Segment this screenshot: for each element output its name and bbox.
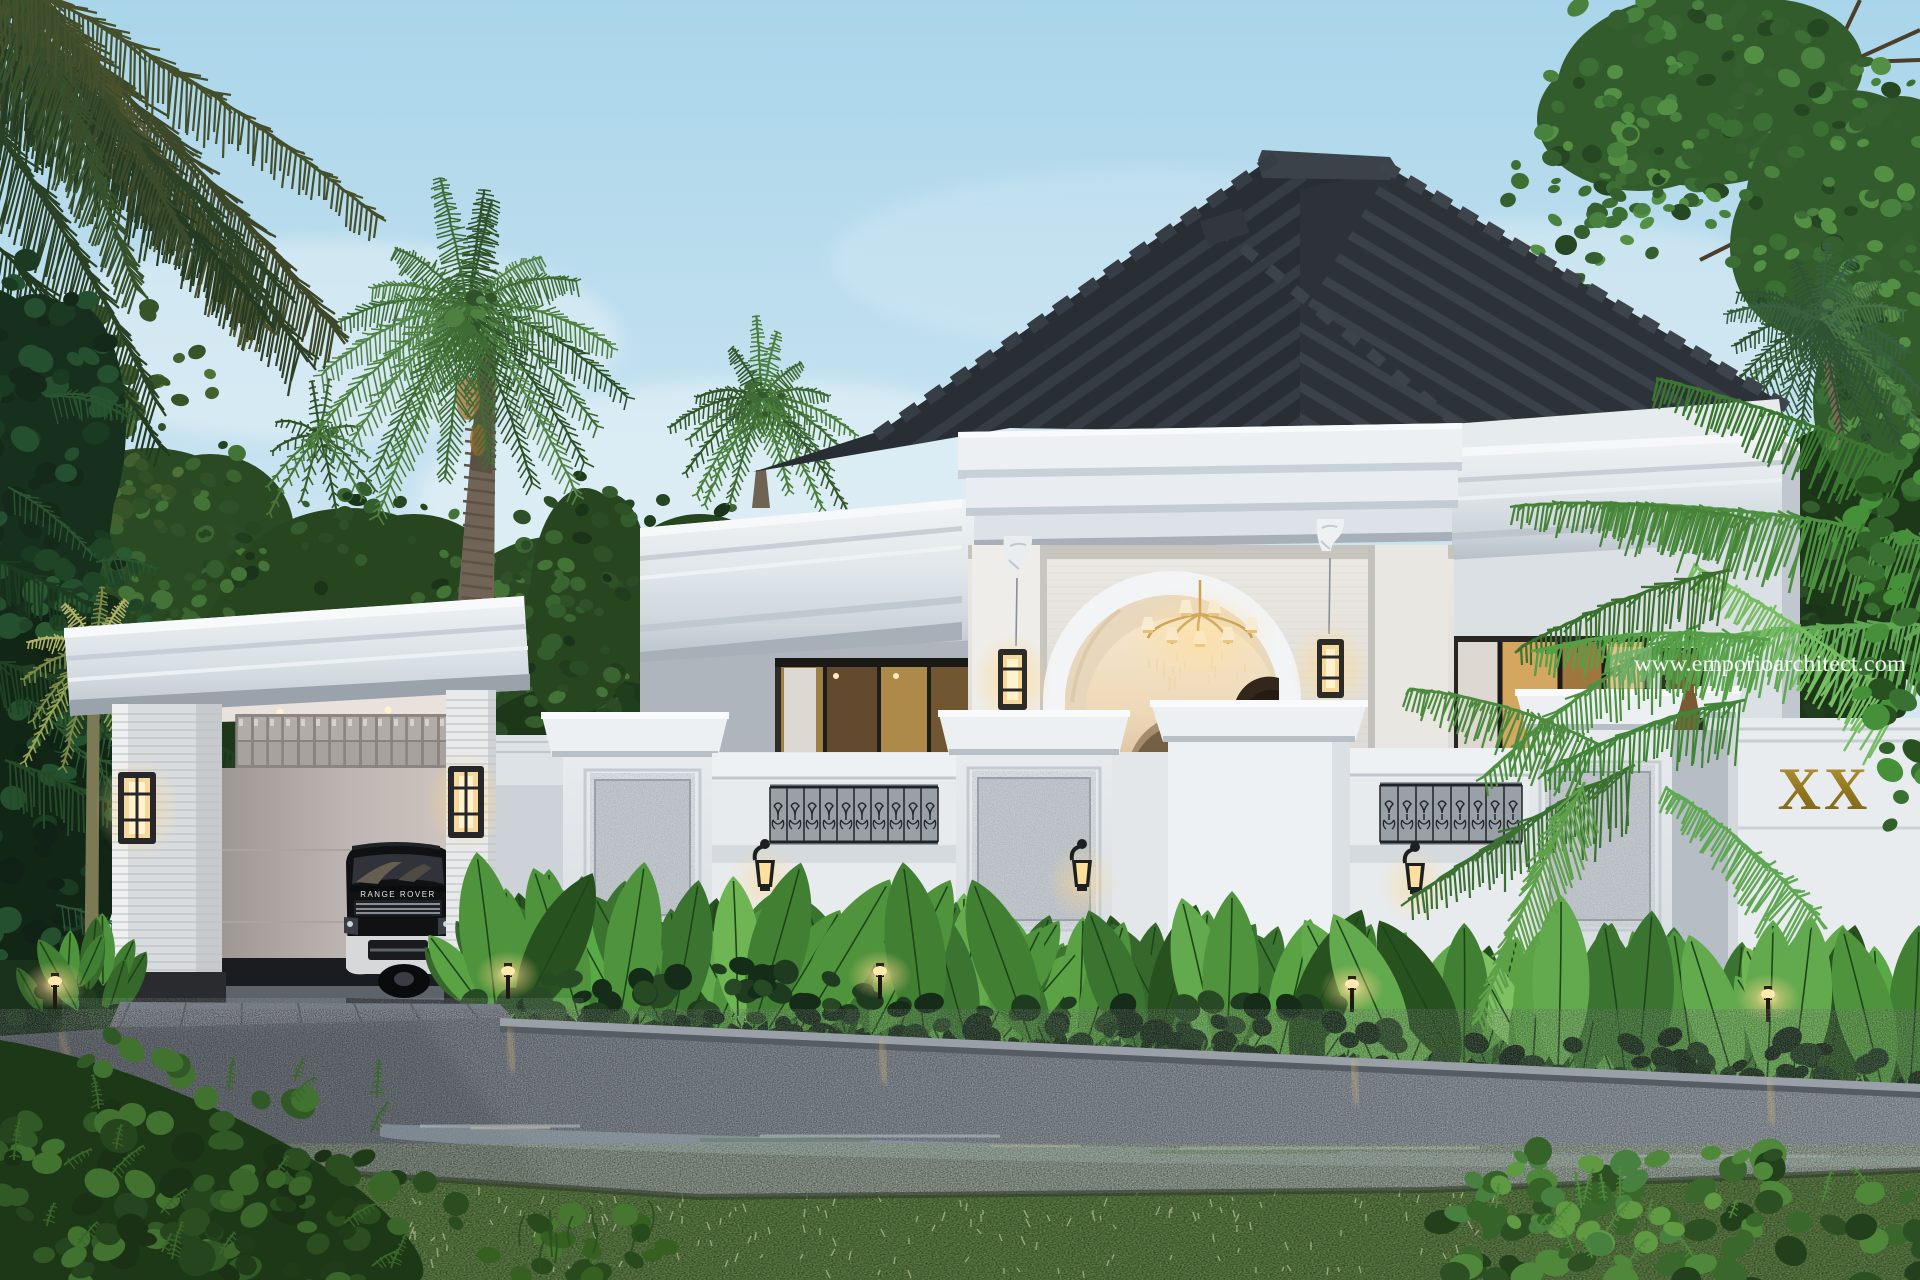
svg-text:XX: XX (1778, 756, 1871, 822)
svg-text:RANGE ROVER: RANGE ROVER (360, 890, 436, 899)
svg-text:www.emporioarchitect.com: www.emporioarchitect.com (1634, 651, 1906, 676)
